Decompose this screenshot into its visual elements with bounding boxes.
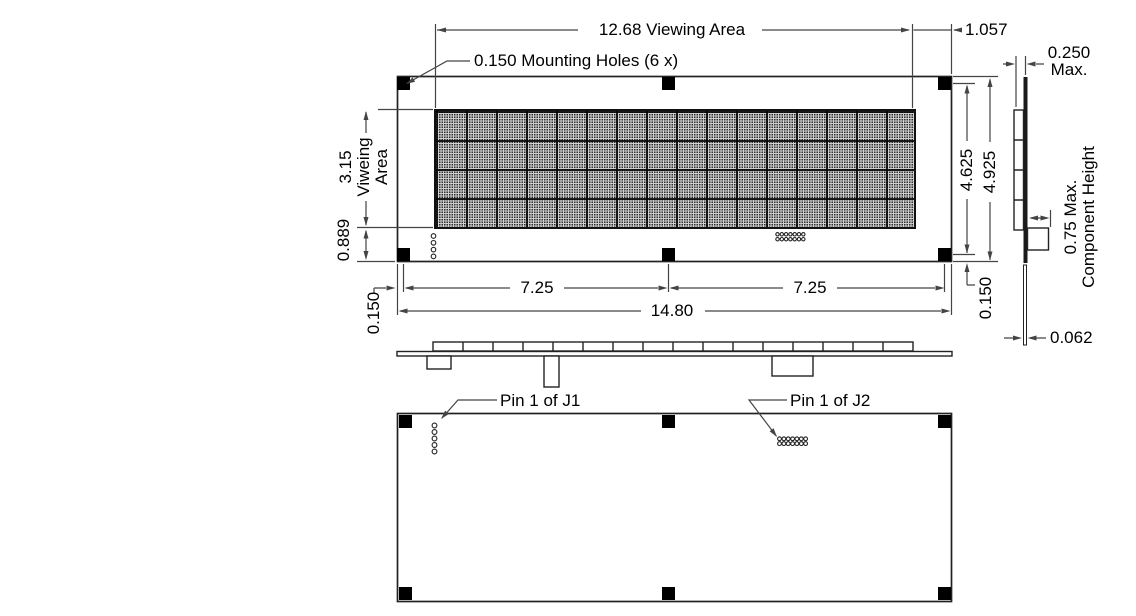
mounting-hole <box>938 77 951 90</box>
dim-label-mounting-holes: 0.150 Mounting Holes (6 x) <box>474 52 678 70</box>
dim-label-thickness-qual: Max. <box>1040 61 1098 79</box>
viewing-height-word1: Viweing <box>355 137 373 196</box>
dim-bottom-margin <box>364 230 369 261</box>
component-side-view <box>1028 228 1049 250</box>
mounting-hole <box>938 415 951 428</box>
connector-edge-view <box>544 356 559 387</box>
pcb-edge-thickness <box>1024 265 1027 345</box>
dim-label-edge-offset: 1.057 <box>965 21 1008 39</box>
viewing-height-value: 3.15 <box>337 150 355 183</box>
j1-pins-bottom-view <box>432 423 437 454</box>
mounting-hole <box>397 248 410 261</box>
dim-edge-offset <box>914 28 963 33</box>
side-view <box>1014 77 1049 345</box>
dim-label-pitch-right: 7.25 <box>785 279 835 297</box>
mounting-hole <box>399 587 412 600</box>
pin1-j1-label: Pin 1 of J1 <box>500 392 580 410</box>
dim-hole-pitch <box>405 286 945 291</box>
j1-connector-edge-view <box>427 356 451 369</box>
viewing-height-word2: Area <box>373 149 391 185</box>
pcb-edge-view <box>397 352 952 357</box>
edge-view <box>397 342 952 387</box>
dim-label-pitch-left: 7.25 <box>512 279 562 297</box>
dim-hole-offset-bottom-right <box>965 263 976 285</box>
mounting-hole <box>662 587 675 600</box>
mounting-hole <box>399 415 412 428</box>
dim-label-hole-offset-left: 0.150 <box>365 288 383 338</box>
board-outline-bottom-view <box>398 414 952 602</box>
dim-label-hole-offset-bottom-right: 0.150 <box>977 273 995 323</box>
mounting-hole <box>662 77 675 90</box>
viewing-area-display-grid <box>434 109 916 229</box>
bottom-view <box>398 400 952 602</box>
dim-label-total-height: 4.925 <box>981 147 999 197</box>
pin1-j2-label: Pin 1 of J2 <box>790 392 870 410</box>
mounting-hole <box>662 415 675 428</box>
mounting-hole <box>938 248 951 261</box>
mounting-hole <box>938 587 951 600</box>
dim-label-viewing-height: 3.15 Viweing Area <box>337 102 391 232</box>
dim-label-total-width: 14.80 <box>642 302 702 320</box>
drawing-canvas <box>0 0 1136 616</box>
mounting-hole <box>662 248 675 261</box>
dim-label-pcb-thickness: 0.062 <box>1050 329 1093 347</box>
mechanical-drawing: 12.68 Viewing Area 0.150 Mounting Holes … <box>0 0 1136 616</box>
dim-label-component-height: 0.75 Max. Component Height <box>1062 137 1098 297</box>
dim-component-height <box>1029 210 1051 227</box>
j2-connector-edge-view <box>772 356 813 376</box>
dim-label-viewing-width: 12.68 Viewing Area <box>577 21 767 39</box>
dim-label-hole-span: 4.625 <box>958 145 976 195</box>
dim-label-bottom-margin: 0.889 <box>335 215 353 265</box>
